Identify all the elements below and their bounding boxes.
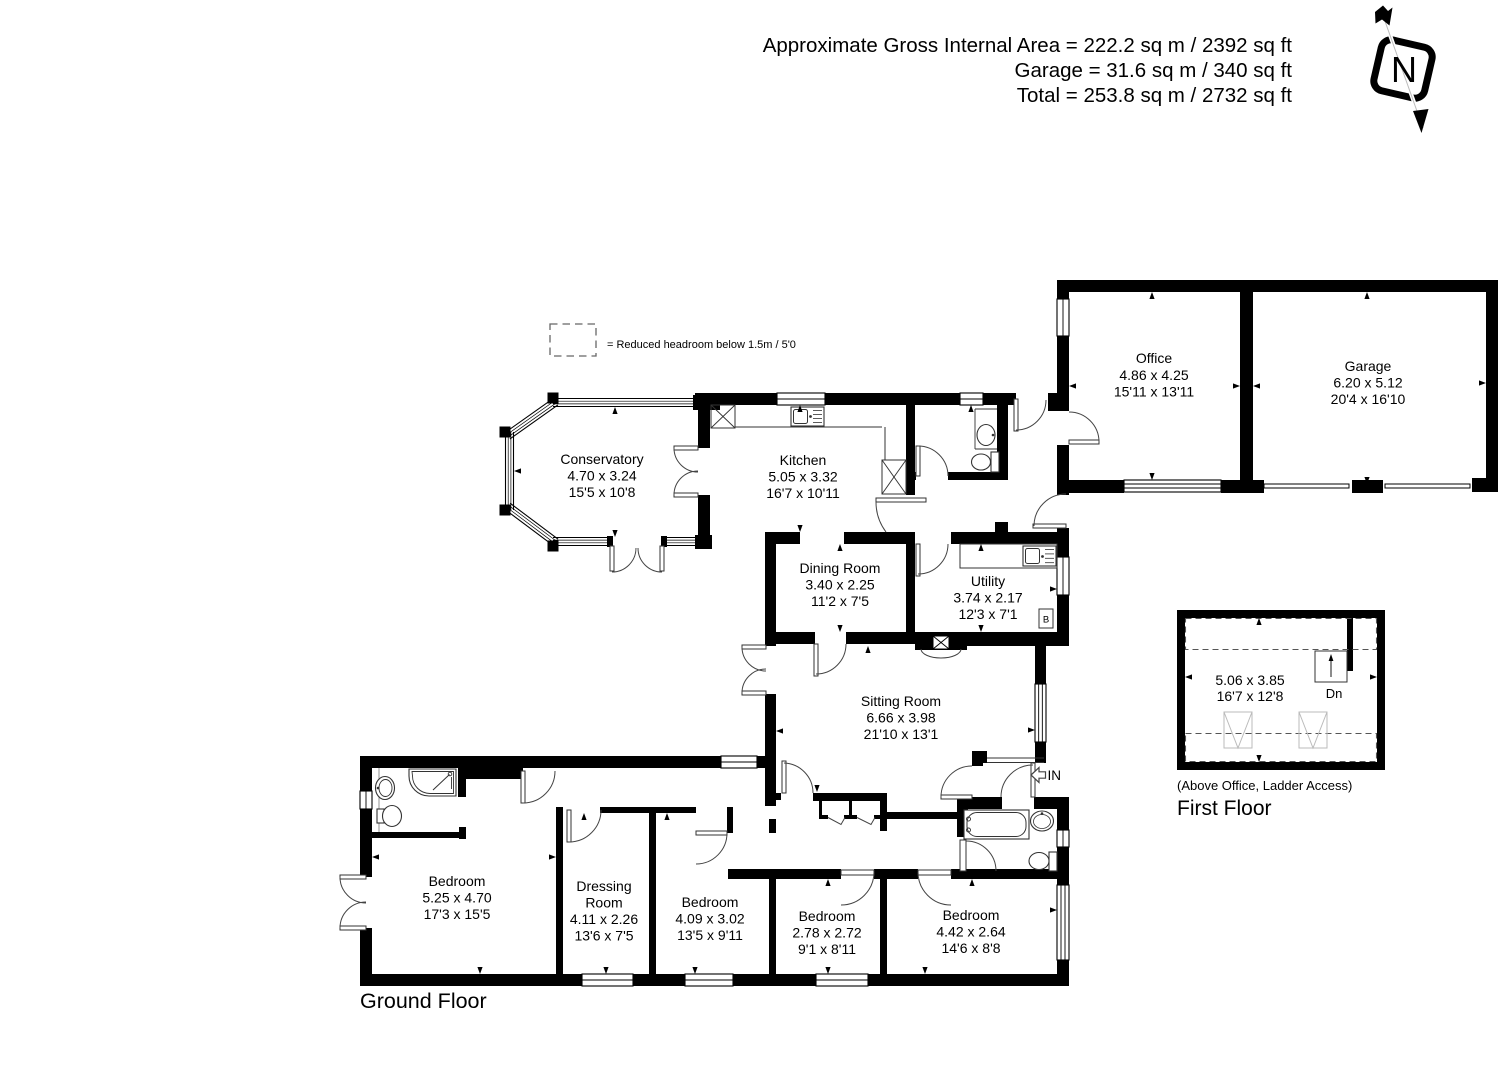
- svg-text:Conservatory: Conservatory: [560, 451, 643, 467]
- svg-text:= Reduced headroom below 1.5m: = Reduced headroom below 1.5m / 5'0: [607, 339, 796, 351]
- svg-text:13'5 x 9'11: 13'5 x 9'11: [677, 927, 743, 943]
- svg-text:6.20 x 5.12: 6.20 x 5.12: [1333, 375, 1402, 391]
- svg-text:B: B: [1043, 615, 1049, 626]
- svg-text:Utility: Utility: [971, 573, 1005, 589]
- svg-text:15'11 x 13'11: 15'11 x 13'11: [1114, 384, 1195, 400]
- svg-text:Garage = 31.6 sq m / 340 sq ft: Garage = 31.6 sq m / 340 sq ft: [1015, 59, 1293, 82]
- svg-text:4.86 x 4.25: 4.86 x 4.25: [1119, 367, 1188, 383]
- svg-text:3.74 x 2.17: 3.74 x 2.17: [953, 590, 1022, 606]
- svg-text:Dressing: Dressing: [576, 878, 631, 894]
- svg-text:12'3 x 7'1: 12'3 x 7'1: [958, 606, 1017, 622]
- svg-text:6.66 x 3.98: 6.66 x 3.98: [866, 710, 935, 726]
- svg-text:Approximate Gross Internal Are: Approximate Gross Internal Area = 222.2 …: [763, 34, 1293, 57]
- svg-text:21'10 x 13'1: 21'10 x 13'1: [864, 726, 939, 742]
- svg-text:17'3 x 15'5: 17'3 x 15'5: [424, 906, 491, 922]
- svg-text:Ground Floor: Ground Floor: [360, 989, 487, 1013]
- svg-text:13'6 x 7'5: 13'6 x 7'5: [574, 928, 633, 944]
- svg-text:Room: Room: [585, 895, 622, 911]
- svg-text:IN: IN: [1048, 768, 1062, 783]
- svg-text:3.40 x 2.25: 3.40 x 2.25: [805, 577, 874, 593]
- svg-text:Garage: Garage: [1345, 358, 1392, 374]
- svg-text:4.70 x 3.24: 4.70 x 3.24: [567, 468, 636, 484]
- svg-text:9'1 x 8'11: 9'1 x 8'11: [798, 941, 856, 957]
- svg-text:Bedroom: Bedroom: [799, 908, 856, 924]
- svg-text:11'2 x 7'5: 11'2 x 7'5: [811, 593, 869, 609]
- svg-text:5.06 x 3.85: 5.06 x 3.85: [1215, 672, 1284, 688]
- svg-text:4.11 x 2.26: 4.11 x 2.26: [570, 911, 638, 927]
- svg-text:5.25 x 4.70: 5.25 x 4.70: [422, 890, 491, 906]
- svg-text:(Above Office, Ladder Access): (Above Office, Ladder Access): [1177, 778, 1352, 793]
- svg-text:Dn: Dn: [1326, 686, 1343, 701]
- svg-text:2.78 x 2.72: 2.78 x 2.72: [792, 925, 861, 941]
- svg-text:Sitting Room: Sitting Room: [861, 693, 941, 709]
- svg-text:Bedroom: Bedroom: [682, 894, 739, 910]
- svg-text:N: N: [1391, 49, 1417, 90]
- svg-text:20'4 x 16'10: 20'4 x 16'10: [1331, 391, 1406, 407]
- svg-text:Dining Room: Dining Room: [800, 560, 881, 576]
- svg-text:First Floor: First Floor: [1177, 797, 1272, 820]
- svg-text:4.42 x 2.64: 4.42 x 2.64: [936, 924, 1005, 940]
- svg-text:Kitchen: Kitchen: [780, 452, 827, 468]
- svg-text:14'6 x 8'8: 14'6 x 8'8: [941, 940, 1000, 956]
- svg-text:5.05 x 3.32: 5.05 x 3.32: [768, 469, 837, 485]
- svg-text:Bedroom: Bedroom: [429, 873, 486, 889]
- svg-text:Bedroom: Bedroom: [943, 907, 1000, 923]
- svg-text:15'5 x 10'8: 15'5 x 10'8: [569, 484, 636, 500]
- svg-text:16'7 x 12'8: 16'7 x 12'8: [1217, 688, 1284, 704]
- svg-text:16'7 x 10'11: 16'7 x 10'11: [766, 485, 840, 501]
- svg-text:Total = 253.8 sq m / 2732 sq f: Total = 253.8 sq m / 2732 sq ft: [1017, 84, 1293, 107]
- svg-text:Office: Office: [1136, 350, 1173, 366]
- svg-text:4.09 x 3.02: 4.09 x 3.02: [675, 911, 744, 927]
